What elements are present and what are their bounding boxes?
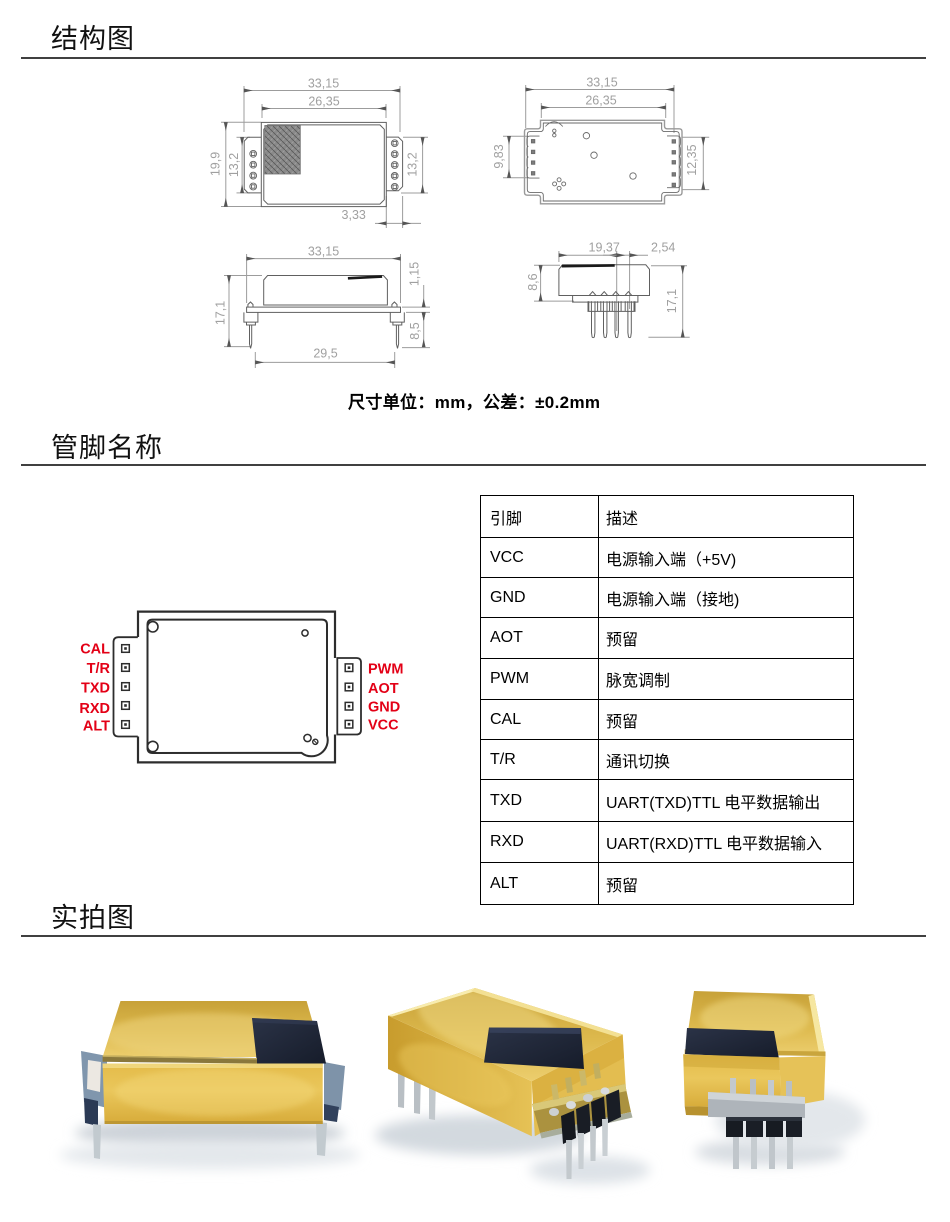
- svg-text:ALT: ALT: [83, 719, 110, 735]
- svg-text:12,35: 12,35: [685, 144, 699, 175]
- svg-text:19,37: 19,37: [589, 241, 620, 255]
- svg-text:8,5: 8,5: [408, 322, 422, 339]
- svg-text:AOT: AOT: [368, 681, 399, 697]
- svg-text:33,15: 33,15: [308, 77, 339, 91]
- svg-text:13,2: 13,2: [227, 153, 241, 177]
- svg-text:PWM: PWM: [368, 662, 403, 678]
- svg-text:2,54: 2,54: [651, 241, 675, 255]
- svg-text:9,83: 9,83: [492, 144, 506, 168]
- svg-text:17,1: 17,1: [214, 301, 228, 325]
- svg-text:33,15: 33,15: [586, 76, 617, 90]
- svg-text:29,5: 29,5: [313, 347, 337, 361]
- svg-text:VCC: VCC: [368, 718, 399, 734]
- svg-text:8,6: 8,6: [526, 273, 540, 290]
- svg-text:19,9: 19,9: [209, 152, 223, 176]
- svg-text:GND: GND: [368, 700, 400, 716]
- svg-text:T/R: T/R: [87, 661, 111, 677]
- svg-text:13,2: 13,2: [406, 152, 420, 176]
- svg-text:26,35: 26,35: [308, 95, 339, 109]
- svg-text:CAL: CAL: [80, 642, 110, 658]
- svg-text:TXD: TXD: [81, 681, 110, 697]
- svg-text:RXD: RXD: [79, 701, 110, 717]
- svg-text:3,33: 3,33: [342, 208, 366, 222]
- svg-text:33,15: 33,15: [308, 245, 339, 259]
- svg-text:26,35: 26,35: [585, 94, 616, 108]
- svg-text:17,1: 17,1: [665, 289, 679, 313]
- svg-text:1,15: 1,15: [407, 262, 421, 286]
